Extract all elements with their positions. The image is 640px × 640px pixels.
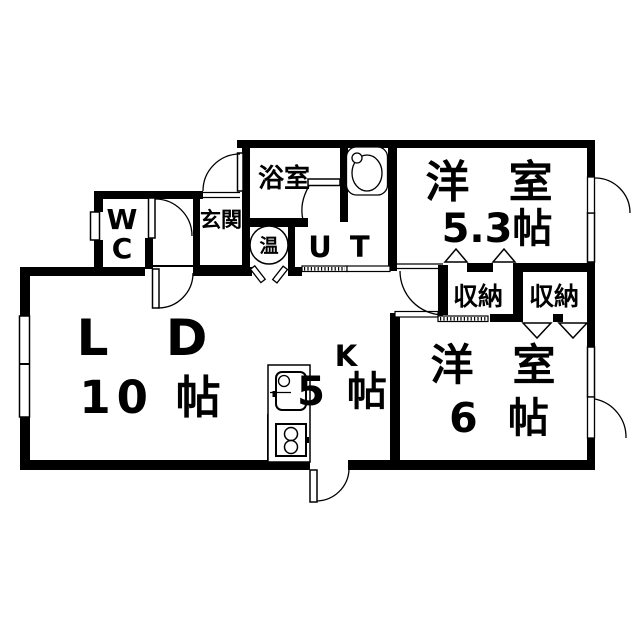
bedroom-upper-exterior-door-leaf bbox=[588, 177, 595, 213]
wall-washroom-right bbox=[388, 146, 397, 271]
bedroom-upper-door-arc bbox=[400, 271, 443, 315]
bedroom-lower-exterior-door-leaf bbox=[588, 397, 595, 438]
kitchen-exterior-door-leaf bbox=[310, 470, 317, 502]
wall-bedroom2-left bbox=[390, 313, 400, 460]
wall-closet-top-b bbox=[515, 263, 587, 272]
closet-right-fold-1 bbox=[523, 323, 551, 338]
wall-right-b bbox=[587, 262, 595, 347]
wall-closet-divider-mid bbox=[513, 263, 523, 315]
storage-left-label: 収納 bbox=[453, 282, 503, 311]
bedroom-upper-exterior-door-arc bbox=[595, 178, 630, 213]
toilet-label-line2: C bbox=[112, 232, 133, 265]
floorplan-drawing: 浴室 玄関 W C 温 U T 洋 室 5.3帖 収納 収納 L D 10 帖 … bbox=[0, 0, 640, 640]
wall-bottom-left bbox=[20, 460, 310, 470]
bedroom-lower-size: 6 帖 bbox=[449, 394, 557, 442]
wall-right-a bbox=[587, 140, 595, 177]
kitchen-faucet bbox=[279, 376, 290, 387]
bathroom-door-leaf bbox=[308, 179, 340, 186]
floorplan-canvas: 浴室 玄関 W C 温 U T 洋 室 5.3帖 収納 収納 L D 10 帖 … bbox=[0, 0, 640, 640]
utility-label: U T bbox=[308, 230, 373, 264]
wall-hall-genkan-divider bbox=[193, 199, 200, 269]
wc-door-leaf bbox=[149, 198, 156, 238]
hall-ld-door-arc bbox=[158, 273, 193, 308]
bedroom-upper-label: 洋 室 bbox=[425, 157, 564, 208]
wall-wc-left-lower bbox=[94, 240, 103, 269]
ut-sliding-panel bbox=[347, 266, 390, 272]
wall-ld-top-mid bbox=[193, 267, 252, 276]
stove-knob bbox=[306, 437, 310, 443]
wall-heater-ut-divider bbox=[288, 220, 295, 270]
wall-wc-right bbox=[145, 238, 153, 269]
wall-bottom-right bbox=[348, 460, 595, 470]
bedroom2-sliding-rail bbox=[438, 316, 488, 322]
washbasin-faucet bbox=[352, 153, 362, 163]
kitchen-exterior-door-arc bbox=[317, 470, 349, 501]
stove-burner-2 bbox=[285, 441, 298, 454]
bedroom-lower-label: 洋 室 bbox=[431, 341, 568, 391]
wall-bath-bottom bbox=[245, 218, 308, 227]
heater-flap-left bbox=[250, 266, 265, 283]
bathroom-label: 浴室 bbox=[258, 163, 310, 194]
bedroom-upper-size: 5.3帖 bbox=[442, 206, 553, 252]
water-heater-label: 温 bbox=[259, 235, 278, 257]
hall-ld-door-leaf bbox=[153, 269, 160, 308]
bedroom2-sliding-panel bbox=[395, 312, 438, 318]
heater-flap-right bbox=[273, 266, 288, 283]
wall-top bbox=[237, 140, 595, 148]
entrance-door-leaf bbox=[238, 153, 244, 191]
wc-door-arc bbox=[155, 199, 192, 236]
wall-bedroom2-top-b bbox=[553, 314, 563, 322]
wall-bedroom2-top-a bbox=[490, 314, 523, 322]
entrance-door-arc bbox=[203, 154, 240, 191]
bedroom-lower-right-window bbox=[588, 347, 595, 397]
stove-burner-1 bbox=[285, 428, 298, 441]
wall-left-lower bbox=[20, 417, 30, 460]
bedroom-lower-exterior-door-arc bbox=[595, 399, 626, 438]
living-dining-size: 10 帖 bbox=[79, 371, 226, 424]
wall-closet-top-a bbox=[467, 263, 493, 272]
storage-right-label: 収納 bbox=[529, 282, 579, 311]
entrance-label: 玄関 bbox=[200, 208, 242, 232]
wall-left-upper bbox=[20, 267, 30, 316]
wall-closet-divider-left bbox=[438, 265, 448, 315]
wall-ld-top-left bbox=[20, 267, 145, 276]
kitchen-faucet-handle bbox=[273, 391, 278, 397]
closet-right-fold-2 bbox=[559, 323, 587, 338]
ld-left-window bbox=[20, 316, 30, 417]
wall-wc-left-upper bbox=[94, 199, 103, 212]
wc-window bbox=[91, 212, 100, 240]
bedroom-upper-right-window bbox=[588, 213, 595, 262]
living-dining-label: L D bbox=[77, 309, 228, 367]
kitchen-label: K bbox=[335, 339, 359, 373]
kitchen-size: 5 帖 bbox=[297, 369, 391, 415]
